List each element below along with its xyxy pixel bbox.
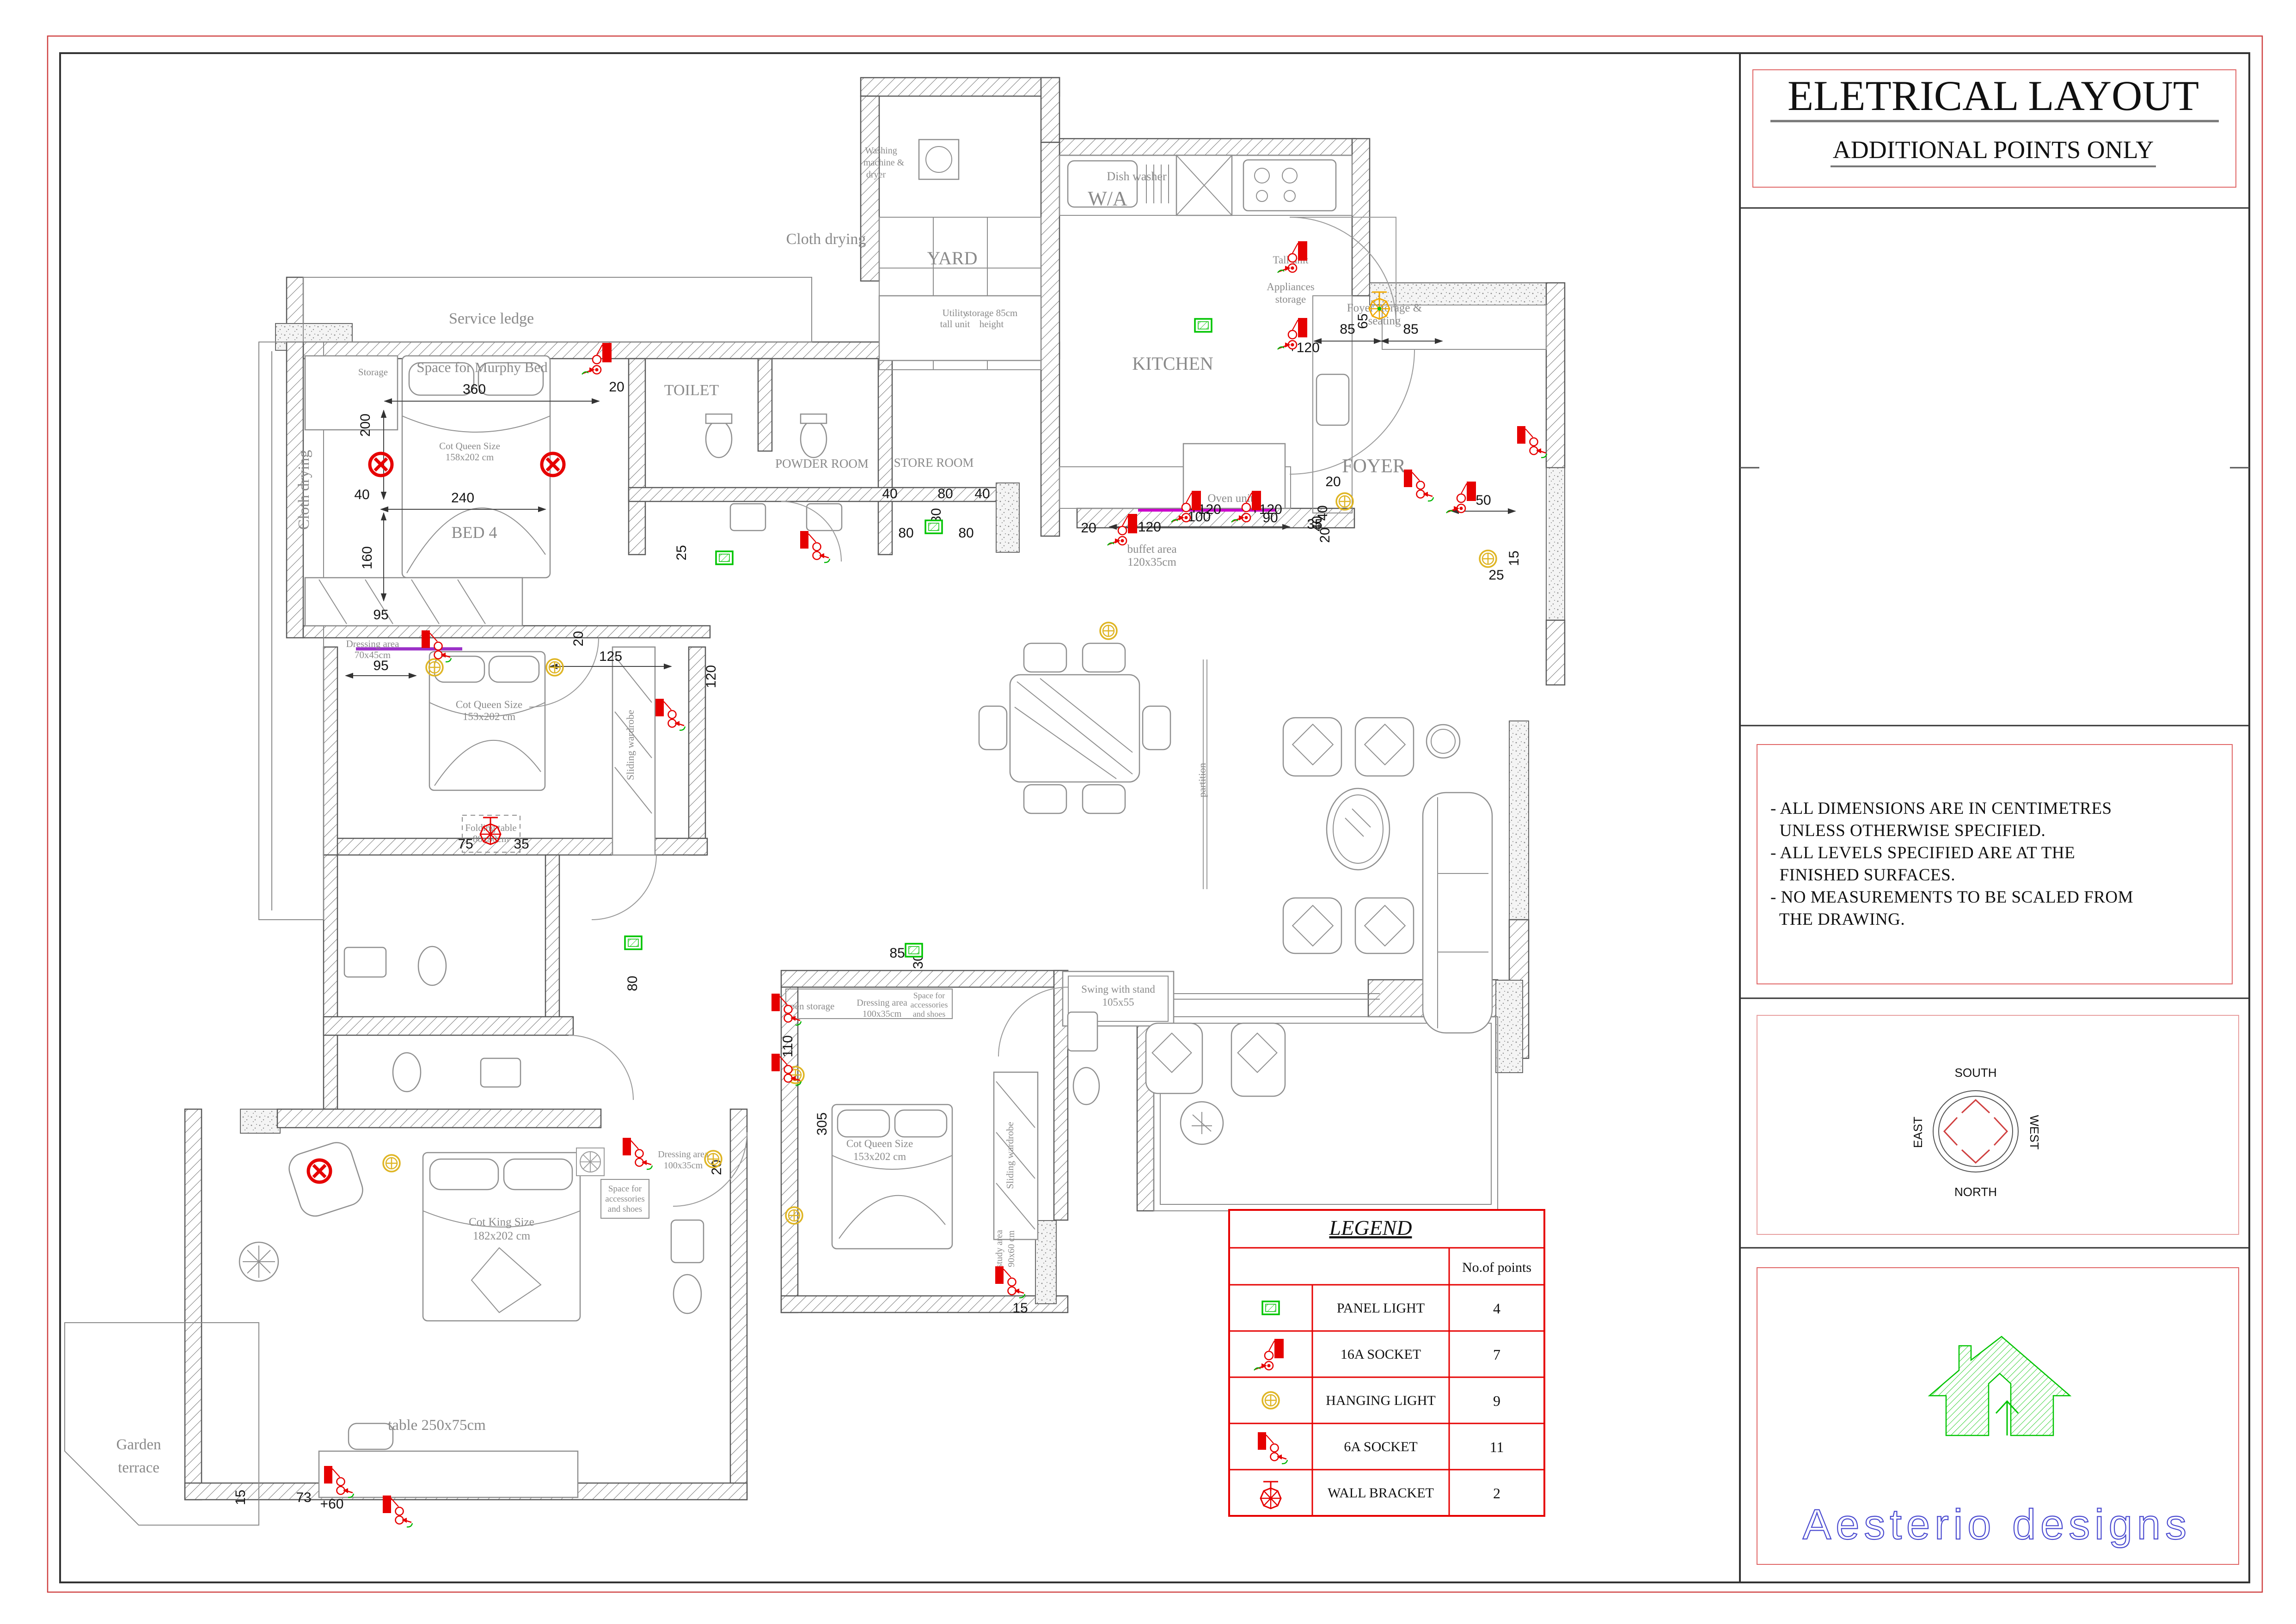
- room-label: 182x202 cm: [473, 1230, 531, 1242]
- dimension-text: 50: [1476, 493, 1491, 508]
- dimension-text: 20: [571, 631, 586, 646]
- legend-row-label: WALL BRACKET: [1328, 1485, 1434, 1501]
- room-label: 153x202 cm: [853, 1151, 906, 1162]
- room-label: accessories: [911, 1000, 948, 1009]
- legend-points-header: No.of points: [1462, 1260, 1531, 1275]
- legend-row-label: 6A SOCKET: [1344, 1439, 1417, 1454]
- panel-light-symbol: [925, 520, 942, 533]
- compass-box-border: [1757, 1015, 2239, 1235]
- note-line: FINISHED SURFACES.: [1770, 864, 2232, 886]
- circle-x-symbol: [370, 453, 392, 476]
- room-label: Space for: [608, 1184, 642, 1194]
- room-label: TOILET: [664, 382, 719, 399]
- room-label: Service ledge: [449, 310, 534, 327]
- dimension-text: 15: [1012, 1300, 1028, 1316]
- dimension-text: 95: [373, 658, 388, 673]
- dimension-text: 95: [373, 607, 388, 623]
- room-label: BED 4: [452, 523, 497, 542]
- room-label: study area: [994, 1230, 1004, 1268]
- dimension-text: 80: [958, 525, 974, 541]
- room-label: Cloth drying: [786, 231, 866, 248]
- socket-6a-symbol: [995, 1266, 1025, 1298]
- logo-box-border: [1757, 1267, 2239, 1565]
- dimension-text: 305: [814, 1112, 830, 1136]
- room-label: Space for Murphy Bed: [416, 359, 548, 375]
- note-line: - NO MEASUREMENTS TO BE SCALED FROM: [1770, 886, 2232, 909]
- hanging-light-symbol: [426, 659, 443, 676]
- note-line: THE DRAWING.: [1770, 909, 2232, 931]
- room-label: and shoes: [913, 1009, 946, 1019]
- dimension-text: 15: [1506, 550, 1522, 566]
- room-label: Appliances: [1267, 281, 1315, 293]
- legend-table: LEGEND No.of points PANEL LIGHT 16A SOCK…: [1229, 1210, 1544, 1516]
- panel-light-symbol: [625, 936, 642, 949]
- hanging-light-symbol: [1480, 550, 1496, 567]
- note-line: - ALL LEVELS SPECIFIED ARE AT THE: [1770, 842, 2232, 864]
- room-label: 120x35cm: [1127, 556, 1176, 568]
- dimension-text: 85: [889, 946, 905, 961]
- dimension-text: 240: [451, 490, 474, 506]
- room-label: dryer: [866, 170, 886, 180]
- dimension-text: 360: [463, 382, 486, 397]
- dimension-text: 15: [233, 1490, 248, 1505]
- room-label: machine &: [863, 158, 905, 168]
- dimension-text: 20: [1081, 520, 1096, 536]
- socket-6a-symbol: [1517, 426, 1547, 458]
- dimension-text: 80: [937, 486, 953, 501]
- dimension-text: 85: [1340, 322, 1355, 337]
- room-label: Cloth drying: [295, 450, 312, 530]
- dimension-text: 35: [514, 836, 529, 852]
- note-line: UNLESS OTHERWISE SPECIFIED.: [1770, 820, 2232, 842]
- hanging-light-symbol: [1100, 623, 1117, 639]
- dimension-text: 120: [704, 665, 719, 688]
- dimension-text: 85: [1403, 322, 1418, 337]
- hanging-light-symbol: [786, 1207, 802, 1224]
- legend-row-points: 2: [1493, 1485, 1500, 1502]
- hanging-light-symbol: [383, 1155, 400, 1172]
- room-label: terrace: [118, 1459, 159, 1476]
- room-label: buffet area: [1127, 543, 1176, 556]
- dimension-text: 80: [898, 525, 913, 541]
- hanging-light-symbol: [1336, 493, 1353, 510]
- dimension-text: 200: [358, 414, 373, 437]
- dimension-text: 40: [882, 486, 897, 501]
- room-label: Garden: [116, 1436, 161, 1453]
- room-label: Dressing area: [658, 1149, 709, 1160]
- dimension-text: 73: [296, 1490, 311, 1505]
- legend-row-label: PANEL LIGHT: [1337, 1300, 1425, 1316]
- room-label: 100x35cm: [664, 1160, 703, 1171]
- room-label: W/A: [1088, 187, 1127, 210]
- dimension-text: 40: [974, 486, 990, 501]
- socket-16a-symbol: [1446, 482, 1476, 513]
- room-label: Cot Queen Size: [456, 699, 522, 710]
- panel-light-symbol: [1195, 319, 1212, 332]
- room-label: and shoes: [608, 1204, 642, 1214]
- dimension-text: 40: [1310, 516, 1325, 531]
- panel-light-symbol: [906, 944, 922, 957]
- room-label: Dressing area: [857, 998, 907, 1008]
- room-label: STORE ROOM: [894, 456, 974, 470]
- room-label: accessories: [605, 1194, 644, 1204]
- note-line: - ALL DIMENSIONS ARE IN CENTIMETRES: [1770, 798, 2232, 820]
- room-label: storage: [1275, 293, 1306, 305]
- legend-row-points: 9: [1493, 1392, 1500, 1409]
- room-label: POWDER ROOM: [775, 457, 869, 470]
- room-label: storage 85cm: [966, 307, 1018, 318]
- dimension-text: 75: [458, 836, 473, 852]
- dimension-text: +60: [320, 1496, 344, 1512]
- hanging-light-symbol: [705, 1151, 722, 1167]
- dimension-text: 25: [674, 545, 689, 560]
- room-label: 100x35cm: [863, 1009, 902, 1019]
- legend-title: LEGEND: [1329, 1216, 1412, 1239]
- legend-row-points: 4: [1493, 1300, 1500, 1317]
- room-label: Cot Queen Size: [846, 1138, 913, 1149]
- dimension-text: 40: [354, 487, 369, 502]
- room-label: height: [980, 318, 1004, 330]
- room-label: Cot Queen Size: [439, 440, 500, 452]
- room-label: Cot King Size: [469, 1216, 534, 1228]
- dimension-text: 20: [1325, 474, 1341, 489]
- dimension-text: 80: [625, 976, 640, 991]
- room-label: Sliding wardrobe: [625, 710, 636, 780]
- hanging-light-symbol: [546, 659, 563, 676]
- room-label: YARD: [927, 248, 978, 269]
- room-label: 90x60 cm: [1006, 1230, 1016, 1267]
- room-label: Space for: [913, 991, 945, 1000]
- dimension-text: 20: [609, 379, 624, 395]
- notes-box: - ALL DIMENSIONS ARE IN CENTIMETRES UNLE…: [1757, 744, 2233, 984]
- legend-row-label: HANGING LIGHT: [1326, 1393, 1435, 1408]
- socket-6a-symbol: [623, 1138, 652, 1169]
- legend-row-points: 7: [1493, 1346, 1500, 1363]
- legend-row-label: 16A SOCKET: [1341, 1347, 1421, 1362]
- socket-6a-symbol: [800, 531, 830, 562]
- room-label: partition: [1196, 763, 1208, 798]
- room-label: 153x202 cm: [463, 711, 515, 722]
- room-label: Sliding wardrobe: [1004, 1122, 1016, 1189]
- room-label: Swing with stand: [1081, 983, 1155, 995]
- room-label: tall unit: [940, 318, 970, 330]
- legend-row-points: 11: [1490, 1439, 1504, 1455]
- fan-symbol: [576, 1148, 604, 1176]
- room-label: KITCHEN: [1132, 353, 1213, 374]
- dimension-text: 25: [1488, 568, 1504, 583]
- dimension-text: 65: [1355, 313, 1371, 329]
- dimension-text: 125: [599, 649, 622, 664]
- room-label: 158x202 cm: [446, 452, 494, 463]
- dimension-text: 160: [360, 546, 375, 569]
- room-label: FOYER: [1342, 456, 1406, 477]
- room-label: Dish washer: [1107, 170, 1167, 183]
- room-label: Utility: [943, 307, 968, 318]
- room-label: 105x55: [1102, 996, 1134, 1008]
- dimension-text: 110: [780, 1035, 796, 1057]
- room-label: Washing: [865, 146, 897, 156]
- room-label: Dressing area: [346, 638, 400, 649]
- socket-6a-symbol: [1404, 470, 1433, 501]
- room-label: table 250x75cm: [388, 1417, 486, 1434]
- title-box-border: [1752, 69, 2236, 188]
- socket-6a-symbol: [655, 699, 685, 730]
- room-label: Storage: [358, 366, 388, 378]
- panel-light-symbol: [716, 551, 733, 564]
